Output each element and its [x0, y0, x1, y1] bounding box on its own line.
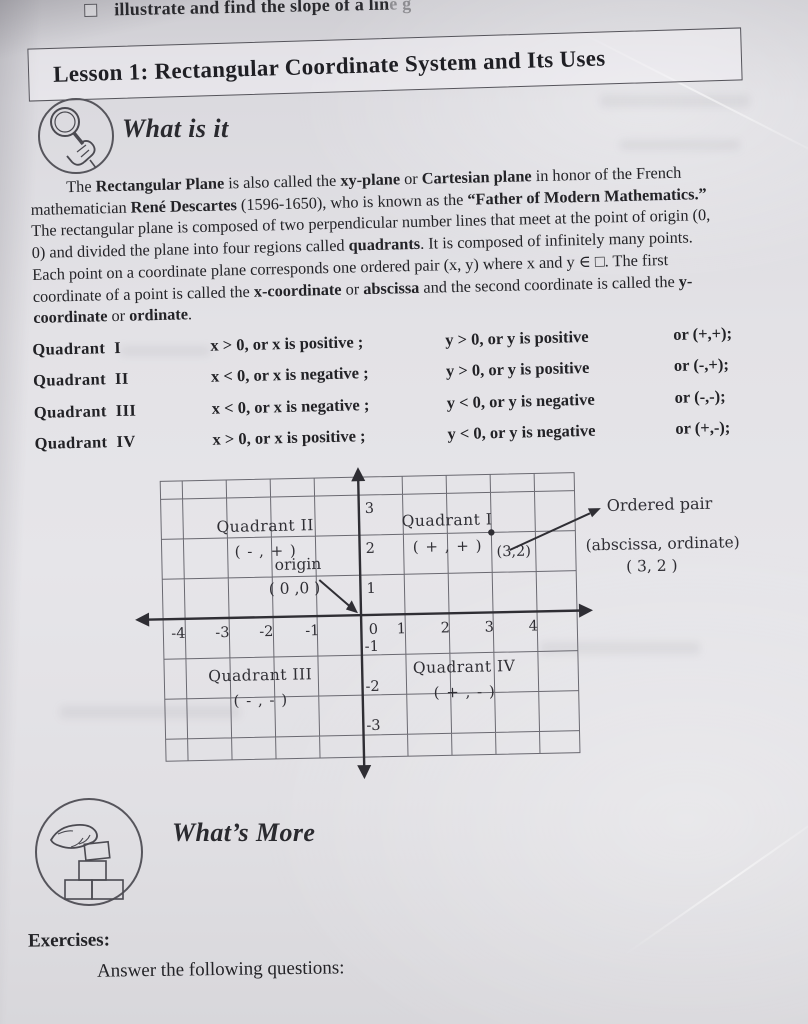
- point-marker: [488, 529, 495, 536]
- top-objective-row: illustrate and find the slope of a line …: [84, 0, 412, 21]
- text-run: René Descartes: [130, 195, 237, 216]
- y-axis: [358, 477, 364, 769]
- y-tick-label: 2: [365, 541, 375, 557]
- quadrant-3-signs: ( - , - ): [233, 691, 288, 710]
- paper-crease: [623, 806, 808, 957]
- x-tick-label: -3: [215, 625, 229, 641]
- origin-label: origin: [275, 555, 322, 574]
- quadrant-4-signs: ( + , - ): [433, 682, 496, 701]
- scanned-worksheet-page: illustrate and find the slope of a line …: [0, 0, 808, 1024]
- y-tick-label: -2: [365, 679, 379, 695]
- x-tick-label: 0: [369, 622, 379, 638]
- origin-coords-label: ( 0 ,0 ): [269, 579, 321, 598]
- x-tick-labels: -4 -3 -2 -1 0 1 2 3 4: [171, 618, 538, 642]
- x-condition-cell: x > 0, or x is positive ;: [210, 330, 445, 356]
- text-run: ordinate: [129, 305, 188, 325]
- x-tick-label: -4: [171, 626, 185, 642]
- x-tick-label: -2: [259, 624, 273, 640]
- text-run: coordinate: [33, 306, 108, 327]
- x-axis: [145, 611, 583, 620]
- text-run: x-coordinate: [254, 279, 342, 300]
- paper-bleedthrough-smudge: [600, 95, 750, 107]
- objective-text: illustrate and find the slope of a line …: [114, 0, 412, 19]
- whats-more-heading: What’s More: [172, 818, 315, 848]
- x-tick-label: 4: [529, 618, 539, 634]
- text-run: quadrants: [348, 234, 420, 255]
- intro-paragraph: The Rectangular Plane is also called the…: [30, 159, 793, 329]
- objective-text-faded: e g: [389, 0, 412, 14]
- quadrant-name-cell: Quadrant I: [32, 336, 210, 360]
- text-run: or: [341, 279, 363, 299]
- y-tick-label: 1: [366, 581, 376, 597]
- lesson-title-box: Lesson 1: Rectangular Coordinate System …: [27, 27, 742, 101]
- text-run: coordinate of a point is called the: [33, 281, 254, 305]
- quadrant-3-label: Quadrant III: [208, 665, 312, 685]
- text-run: mathematician: [31, 197, 131, 218]
- text-run: is also called the: [224, 171, 341, 193]
- quadrant-1-signs: ( + , + ): [413, 537, 483, 556]
- objective-checkbox-icon: [84, 4, 97, 17]
- text-run: and the second coordinate is called the: [419, 271, 679, 296]
- axes: [142, 473, 586, 774]
- paper-bleedthrough-smudge: [620, 140, 740, 150]
- objective-text-start: illustrate and find the slope of a lin: [114, 0, 389, 19]
- abscissa-ordinate-label: (abscissa, ordinate): [585, 533, 739, 554]
- sign-pair-cell: or (-,+);: [674, 353, 787, 376]
- origin-annotation: origin ( 0 ,0 ): [268, 554, 358, 615]
- y-tick-labels: 3 2 1 -1 -2 -3: [362, 501, 381, 734]
- text-run: abscissa: [363, 277, 420, 297]
- sign-pair-cell: or (-,-);: [674, 385, 787, 408]
- y-condition-cell: y > 0, or y is positive: [445, 325, 673, 350]
- y-tick-label: -1: [365, 639, 379, 655]
- quadrant-2-label: Quadrant II: [216, 516, 314, 536]
- coordinate-plane-diagram: -4 -3 -2 -1 0 1 2 3 4 3 2 1 -1 -2 -3 Q: [128, 458, 808, 812]
- quadrant-4-label: Quadrant IV: [413, 657, 516, 677]
- text-run: or: [107, 306, 129, 326]
- hand-stacking-blocks-icon: [33, 796, 145, 908]
- ordered-pair-value: ( 3, 2 ): [626, 557, 678, 576]
- y-tick-label: 3: [365, 501, 375, 517]
- quadrant-name-cell: Quadrant IV: [34, 430, 212, 454]
- x-condition-cell: x < 0, or x is negative ;: [212, 393, 447, 419]
- x-tick-label: -1: [305, 623, 319, 639]
- exercises-instruction: Answer the following questions:: [97, 957, 345, 982]
- quadrant-name-cell: Quadrant II: [33, 367, 211, 391]
- origin-arrow: [319, 579, 350, 607]
- x-tick-label: 1: [397, 621, 407, 637]
- x-tick-label: 2: [441, 620, 451, 636]
- y-condition-cell: y > 0, or y is positive: [446, 356, 674, 381]
- y-condition-cell: y < 0, or y is negative: [447, 419, 675, 444]
- magnifier-hand-icon: [36, 96, 116, 176]
- text-run: y-: [679, 271, 693, 290]
- text-run: xy-plane: [340, 169, 400, 189]
- text-run: or: [400, 169, 422, 189]
- text-run: .: [188, 304, 193, 323]
- y-tick-label: -3: [366, 718, 380, 734]
- ordered-pair-label: Ordered pair: [607, 494, 713, 515]
- x-condition-cell: x > 0, or x is positive ;: [212, 424, 447, 450]
- text-run: in honor of the French: [531, 163, 681, 186]
- point-label: (3,2): [496, 544, 531, 561]
- text-run: Cartesian plane: [422, 166, 532, 188]
- exercises-heading: Exercises:: [28, 929, 110, 952]
- x-tick-label: 3: [485, 619, 495, 635]
- sign-pair-cell: or (+,-);: [675, 416, 788, 439]
- what-is-it-heading: What is it: [122, 114, 229, 144]
- text-run: The: [66, 176, 96, 196]
- y-condition-cell: y < 0, or y is negative: [447, 388, 675, 413]
- quadrant-table: Quadrant Ix > 0, or x is positive ;y > 0…: [32, 316, 789, 460]
- text-run: Rectangular Plane: [95, 173, 224, 195]
- quadrant-name-cell: Quadrant III: [34, 399, 212, 423]
- quadrant-1-label: Quadrant I: [402, 510, 493, 530]
- lesson-title: Lesson 1: Rectangular Coordinate System …: [28, 28, 741, 100]
- sign-pair-cell: or (+,+);: [673, 322, 786, 345]
- x-condition-cell: x < 0, or x is negative ;: [211, 362, 446, 388]
